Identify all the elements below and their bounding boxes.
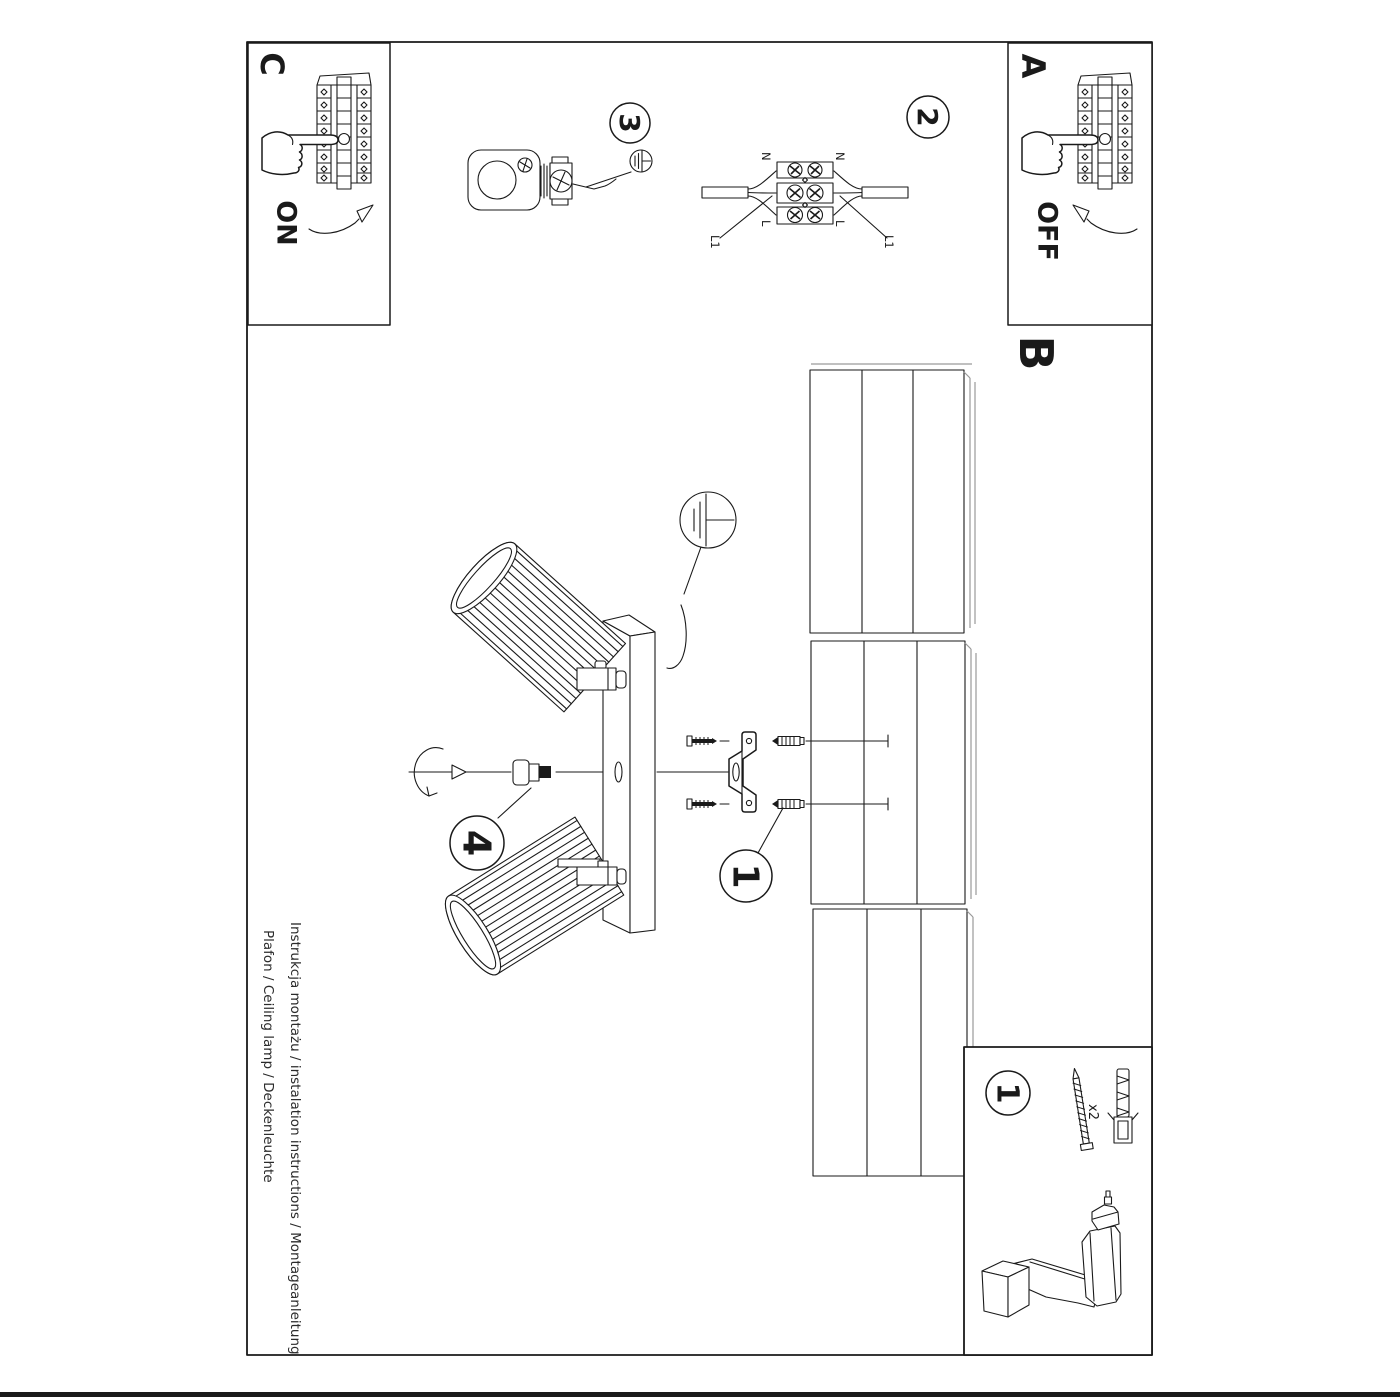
letter-a: A — [1014, 54, 1052, 79]
breaker-panel-icon — [1078, 73, 1132, 189]
earth-symbol-icon — [680, 492, 736, 548]
earth-symbol-icon — [630, 150, 652, 172]
label-on: ON — [271, 200, 302, 246]
board-section-2 — [811, 641, 976, 904]
label-l-left: L — [759, 220, 773, 227]
label-l1-left: L1 — [708, 235, 722, 249]
label-l1-right: L1 — [882, 235, 896, 249]
instruction-drawing: C ON A OFF B 3 — [0, 0, 1400, 1400]
breaker-panel-icon — [317, 73, 371, 189]
hardware-quantity: x2 — [1085, 1104, 1100, 1120]
step-2-number: 2 — [911, 107, 944, 126]
page-background — [0, 0, 1400, 1400]
footer-line-1: Instrukcja montażu / instalation instruc… — [287, 922, 303, 1355]
step-4-number: 4 — [455, 830, 499, 856]
letter-c: C — [253, 52, 291, 75]
page-bottom-edge — [0, 1392, 1400, 1397]
hardware-inset: 1 x2 — [964, 1047, 1152, 1355]
label-n-right: N — [833, 152, 847, 161]
footer-line-2: Plafon / Ceiling lamp / Deckenleuchte — [260, 930, 276, 1183]
wall-plug-icon — [772, 737, 804, 746]
label-off: OFF — [1032, 201, 1063, 261]
ceiling-boards — [810, 364, 976, 1176]
instruction-sheet: C ON A OFF B 3 — [0, 0, 1400, 1400]
letter-b: B — [1009, 335, 1063, 370]
wall-plug-icon — [772, 800, 804, 809]
hardware-step-number: 1 — [990, 1083, 1025, 1104]
step-1-number: 1 — [724, 863, 765, 888]
label-l-right: L — [833, 220, 847, 227]
step-3-number: 3 — [613, 113, 646, 132]
terminal-block-icon — [777, 162, 833, 224]
board-section-3 — [813, 909, 973, 1176]
plate-screw-hole — [615, 762, 622, 782]
label-n-left: N — [759, 152, 773, 161]
board-section-1 — [810, 370, 975, 633]
